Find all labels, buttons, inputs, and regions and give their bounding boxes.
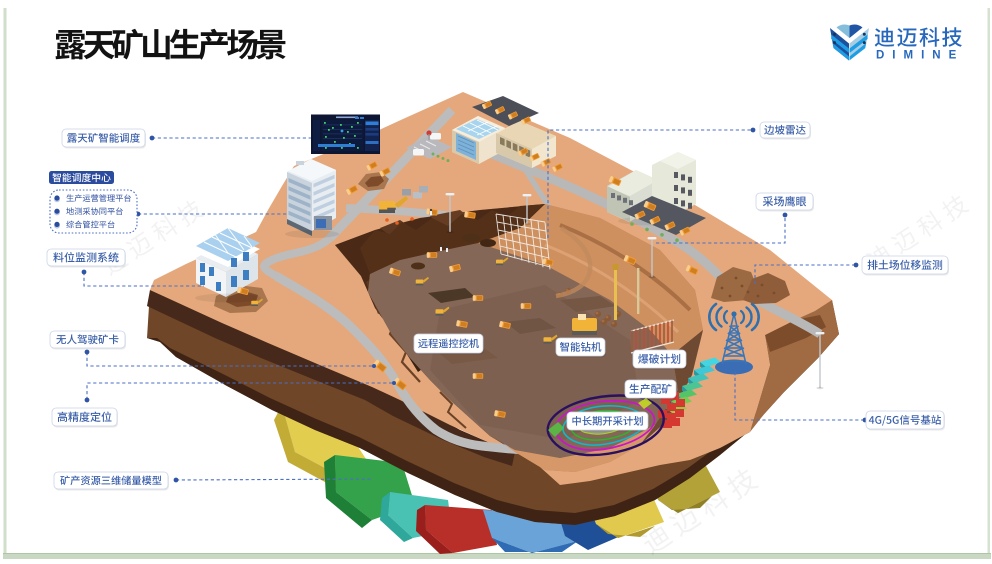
- svg-text:DIMINE: DIMINE: [876, 50, 964, 62]
